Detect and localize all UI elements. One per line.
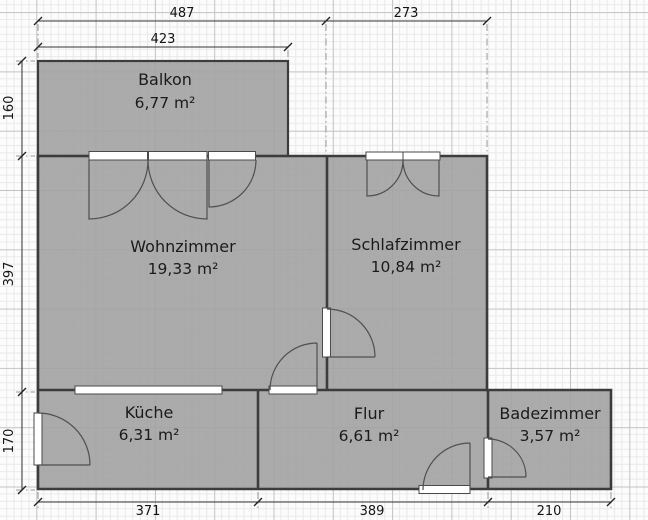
room-schlafzimmer-area: 10,84 m² (371, 258, 442, 276)
floor-plan-canvas: 487 273 423 160 397 170 371 389 210 Balk… (0, 0, 648, 520)
schlafzimmer-window-right-panel[interactable] (403, 152, 440, 160)
schlafzimmer-window-left-panel[interactable] (366, 152, 403, 160)
schlafzimmer-door-panel[interactable] (323, 308, 331, 357)
kueche-pass-window-panel[interactable] (75, 386, 222, 394)
dim-label-371: 371 (136, 504, 161, 519)
room-badezimmer-area: 3,57 m² (520, 427, 581, 445)
room-kueche-name: Küche (125, 403, 174, 422)
room-balkon-name: Balkon (138, 70, 192, 89)
room-flur-name: Flur (354, 404, 385, 423)
wohnzimmer-flur-door-panel[interactable] (269, 386, 317, 394)
balcony-double-door-left-panel[interactable] (89, 152, 148, 161)
dim-label-389: 389 (360, 504, 385, 519)
room-balkon-area: 6,77 m² (135, 94, 196, 112)
room-badezimmer-name: Badezimmer (499, 404, 601, 423)
dim-label-487: 487 (170, 6, 195, 21)
balcony-double-door-right-panel[interactable] (149, 152, 208, 161)
floor-plan-svg: 487 273 423 160 397 170 371 389 210 Balk… (0, 0, 648, 520)
room-flur-area: 6,61 m² (339, 427, 400, 445)
room-kueche-area: 6,31 m² (119, 426, 180, 444)
entrance-door-panel[interactable] (419, 486, 470, 494)
room-schlafzimmer-name: Schlafzimmer (351, 235, 461, 254)
room-wohnzimmer-name: Wohnzimmer (130, 237, 236, 256)
dim-label-397: 397 (2, 262, 17, 287)
dim-label-210: 210 (537, 504, 562, 519)
dim-label-273: 273 (394, 6, 419, 21)
dim-label-423: 423 (151, 32, 176, 47)
kueche-window-panel[interactable] (34, 413, 42, 465)
dim-label-170: 170 (2, 429, 17, 454)
dim-label-160: 160 (2, 96, 17, 121)
badezimmer-door-panel[interactable] (484, 438, 492, 478)
room-wohnzimmer-area: 19,33 m² (148, 260, 219, 278)
balcony-single-door-panel[interactable] (209, 152, 256, 161)
